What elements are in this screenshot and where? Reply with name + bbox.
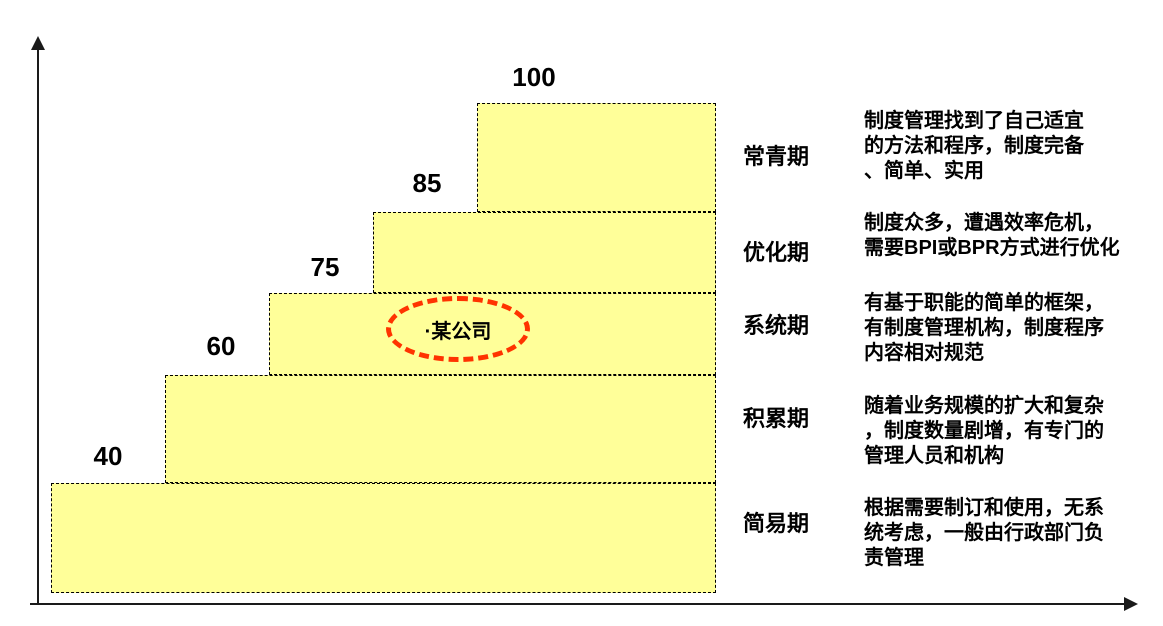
stage-name-youhuaqi: 优化期 — [743, 240, 843, 266]
stage-name-changqingqi: 常青期 — [743, 144, 843, 170]
x-axis — [30, 603, 1126, 605]
value-label-jileiqi: 60 — [181, 331, 261, 361]
value-label-changqingqi: 100 — [494, 62, 574, 92]
stage-description-xitongqi: 有基于职能的简单的框架， 有制度管理机构，制度程序 内容相对规范 — [864, 291, 1163, 366]
stage-description-changqingqi: 制度管理找到了自己适宜 的方法和程序，制度完备 、简单、实用 — [864, 109, 1163, 184]
stage-bar-jianyiqi — [51, 483, 716, 593]
stage-name-jianyiqi: 简易期 — [743, 511, 843, 537]
company-highlight-ellipse: ·某公司 — [386, 296, 530, 362]
value-label-jianyiqi: 40 — [68, 441, 148, 471]
stage-name-jileiqi: 积累期 — [743, 406, 843, 432]
maturity-staircase-chart: 100 85 75 60 40 常青期 优化期 系统期 积累期 简易期 制度管理… — [0, 0, 1163, 626]
value-label-xitongqi: 75 — [285, 252, 365, 282]
stage-description-jileiqi: 随着业务规模的扩大和复杂 ，制度数量剧增，有专门的 管理人员和机构 — [864, 394, 1163, 469]
stage-description-youhuaqi: 制度众多，遭遇效率危机， 需要BPI或BPR方式进行优化 — [864, 211, 1163, 261]
stage-bar-youhuaqi — [373, 212, 716, 293]
x-axis-arrow-icon — [1124, 597, 1138, 611]
value-label-youhuaqi: 85 — [387, 168, 467, 198]
company-annotation-label: ·某公司 — [425, 315, 492, 344]
stage-bar-jileiqi — [165, 375, 716, 483]
stage-description-jianyiqi: 根据需要制订和使用，无系 统考虑，一般由行政部门负 责管理 — [864, 496, 1163, 571]
y-axis — [37, 46, 39, 605]
stage-name-xitongqi: 系统期 — [743, 313, 843, 339]
y-axis-arrow-icon — [31, 36, 45, 50]
stage-bar-changqingqi — [477, 103, 716, 212]
